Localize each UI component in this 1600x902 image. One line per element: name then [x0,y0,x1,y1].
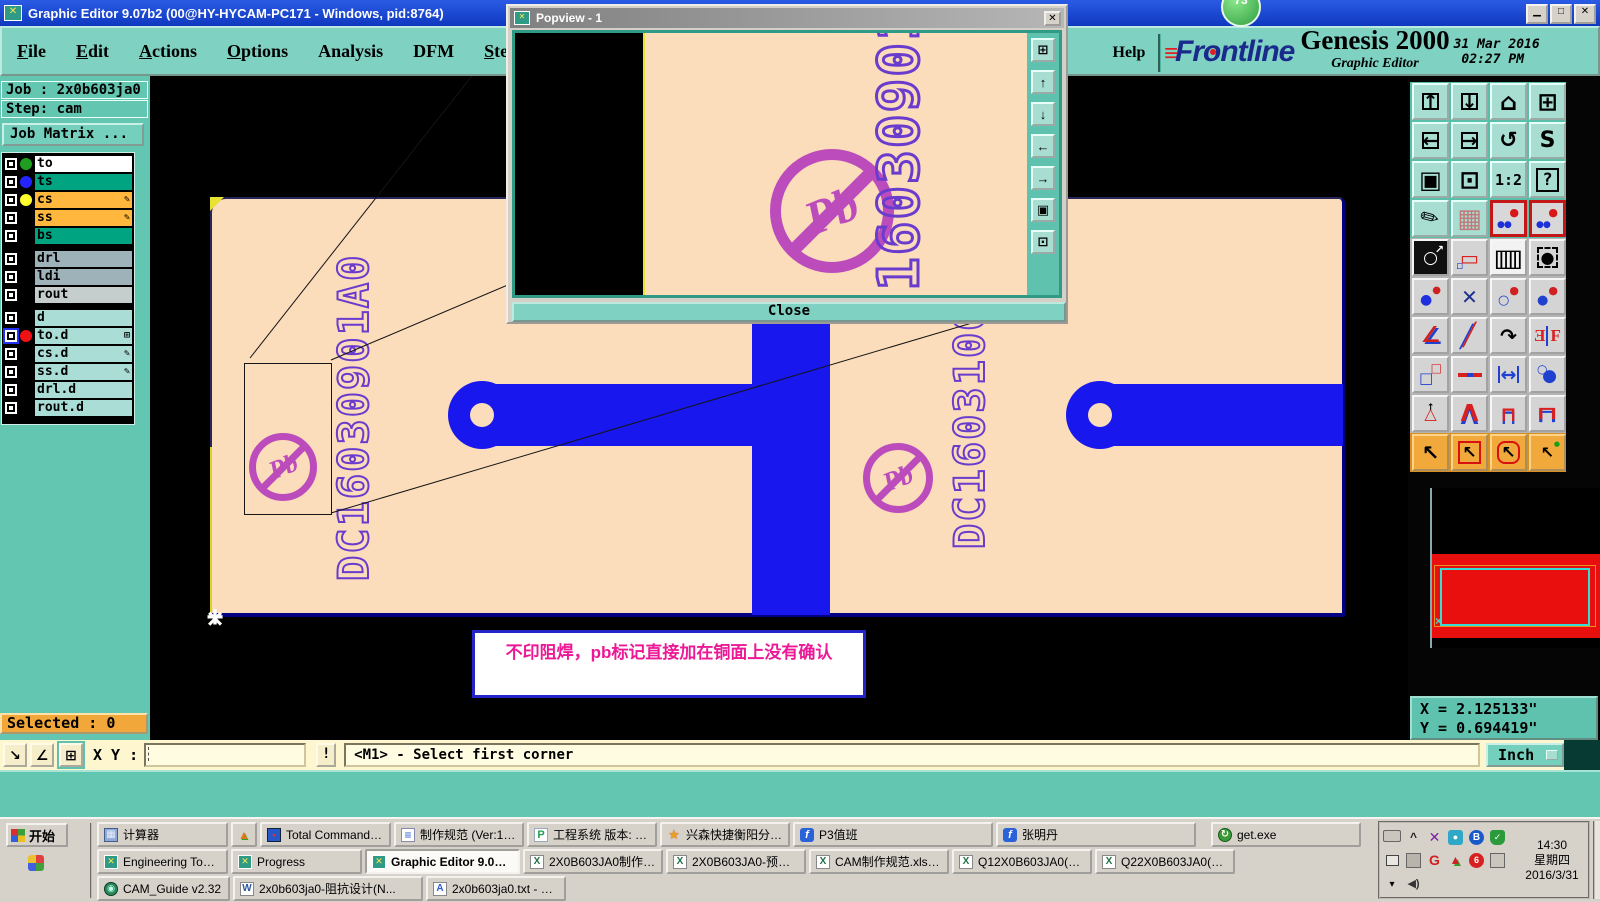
layer-checkbox[interactable] [5,348,17,360]
app-icon: ✕ [4,5,22,21]
dash-line-button[interactable] [1451,356,1488,393]
taskbar-row-1: 计算器 Total Commander 7.0 ... 制作规范 (Ver:1.… [97,822,1361,847]
crosshair-cursor-icon: +× [198,604,232,638]
excel-icon [530,855,544,869]
layer-checkbox[interactable] [5,253,17,265]
layer-checkbox[interactable] [5,230,17,242]
get-exe-icon [1218,828,1232,842]
zoom-out-button[interactable] [1451,161,1488,198]
taskbar-item-zhang[interactable]: 张明丹 [996,822,1196,847]
select-frame-button[interactable] [1451,434,1488,471]
step-name-box: Step: cam [1,100,148,118]
pb-free-mark-mid[interactable]: Pb [863,443,933,513]
xy-origin-button[interactable] [1529,83,1566,120]
volume-icon[interactable]: ◀) [1406,876,1421,891]
taskbar-item-spec-doc[interactable]: 制作规范 (Ver:1.0.6) [394,822,524,847]
tray-dropdown-icon[interactable]: ▾ [1389,879,1394,890]
quick-launch-icon[interactable] [28,855,44,871]
select-net-button[interactable] [1529,434,1566,471]
wordpad-icon [433,882,447,896]
menu-help[interactable]: Help [1100,34,1161,72]
dropdown-handle-icon [1546,750,1558,760]
prompt-message: <M1> - Select first corner [344,743,1480,767]
excel-icon [816,855,830,869]
layer-color-dot [20,348,32,360]
distance-point-button[interactable] [1490,278,1527,315]
taskbar-row-2: Engineering Toolkit 9.07... Progress Gra… [97,849,1235,874]
popview-serial-text: 16030901A0 [867,33,932,291]
genesis-icon [238,855,252,869]
copper-cap-right[interactable] [1066,381,1134,449]
taskbar-item-xls-2[interactable]: 2X0B603JA0-预审指示.... [666,849,806,874]
cam-guide-icon [104,882,118,896]
layer-row-ss[interactable]: ss✎ [4,209,132,226]
layer-display-button-2[interactable] [1529,200,1566,237]
taskbar-item-wordpad[interactable]: 2x0b603ja0.txt - 写字板 [426,876,566,901]
bluetooth-icon[interactable]: B [1469,830,1484,845]
maximize-button[interactable]: □ [1550,4,1572,24]
pan-up-button[interactable] [1412,83,1449,120]
redraw-view-button[interactable] [1490,122,1527,159]
layer-color-dot [20,384,32,396]
menu-analysis[interactable]: Analysis [303,41,398,62]
popview-close-button[interactable]: Close [512,302,1066,322]
ruler-measure-button[interactable] [1490,239,1527,276]
zoom-area-button[interactable] [1412,239,1449,276]
popview-canvas[interactable]: Pb 16030901A0 ⊞ ↑ ↓ ← → ▣ ⊡ [515,33,1059,295]
select-lasso-button[interactable] [1490,434,1527,471]
document-lines-icon [401,828,415,842]
grid-snap-button[interactable]: ⊞ [59,743,83,767]
arrow-app-icon[interactable]: ▲ [1448,853,1463,868]
layer-checkbox-active[interactable] [5,330,17,342]
layer-color-dot [20,176,32,188]
color-app-icon [237,828,251,842]
p-system-icon [534,828,548,842]
slope-measure-button[interactable] [1451,317,1488,354]
layer-color-dot [20,402,32,414]
tray-time: 14:30 [1516,838,1588,853]
popview-close-icon[interactable]: ✕ [1044,11,1061,26]
taskbar-row-3: CAM_Guide v2.32 2x0b603ja0-阻抗设计(N... 2x0… [97,876,566,901]
show-desktop-button[interactable] [1593,821,1600,899]
taskbar-item-p3-duty[interactable]: P3值班 [793,822,993,847]
taskbar-item-total-commander[interactable]: Total Commander 7.0 ... [260,822,391,847]
taskbar-item-calculator[interactable]: 计算器 [97,822,228,847]
layer-row-rout-d[interactable]: rout.d [4,399,132,416]
layer-row-drl-d[interactable]: drl.d [4,381,132,398]
layer-color-dot [20,253,32,265]
taskbar: 开始 计算器 Total Commander 7.0 ... 制作规范 (Ver… [0,817,1600,902]
tray-date: 2016/3/31 [1516,868,1588,883]
right-toolbar-panel: 1:2 ? [1408,76,1600,740]
x-coordinate: X = 2.125133" [1420,700,1596,719]
layer-checkbox[interactable] [5,194,17,206]
layer-row-rout[interactable]: rout [4,286,132,303]
layer-color-dot [20,230,32,242]
taskbar-item-word-doc[interactable]: 2x0b603ja0-阻抗设计(N... [233,876,423,901]
foxmail-icon [800,828,814,842]
excel-icon [959,855,973,869]
net-filter-button[interactable] [1412,278,1449,315]
fetion-icon[interactable]: 6 [1469,853,1484,868]
foxmail-icon [1003,828,1017,842]
layer-checkbox[interactable] [5,212,17,224]
mirror-button[interactable] [1529,317,1566,354]
popview-zoom-out-icon[interactable]: ⊡ [1031,230,1055,254]
layer-checkbox[interactable] [5,158,17,170]
taskbar-item-xls-3[interactable]: CAM制作规范.xls [兼... [809,849,949,874]
layer-checkbox[interactable] [5,402,17,414]
draw-tools-button[interactable] [1412,200,1449,237]
start-button[interactable]: 开始 [6,823,68,847]
menu-edit[interactable]: Edit [61,41,124,62]
pad-filter-button[interactable] [1529,239,1566,276]
layer-color-dot [20,194,32,206]
star-icon [667,828,681,842]
layer-color-dot [20,271,32,283]
pen-mark-icon: ✎ [124,364,130,380]
popview-pan-right-icon[interactable]: → [1031,166,1055,190]
copy-feature-button[interactable] [1412,356,1449,393]
training-tool-icon[interactable]: ✕ [1427,830,1442,845]
calculator-icon [104,828,118,842]
menu-options[interactable]: Options [212,41,303,62]
pen-mark-icon: ✎ [124,346,130,362]
tray-day: 星期四 [1516,853,1588,868]
taskbar-item-eng-system[interactable]: 工程系统 版本: 1.1... [527,822,657,847]
surface-filter-button[interactable] [1529,356,1566,393]
popview-window[interactable]: ✕ Popview - 1 ✕ Pb 16030901A0 ⊞ ↑ ↓ ← → … [506,4,1068,324]
clock[interactable]: 14:30 星期四 2016/3/31 [1516,823,1588,897]
minimap-viewport-rect[interactable] [1440,568,1590,626]
pan-down-button[interactable] [1451,83,1488,120]
layer-color-dot [20,158,32,170]
g-app-icon[interactable]: G [1427,853,1442,868]
query-button[interactable]: ? [1529,161,1566,198]
select-pointer-button[interactable] [1412,434,1449,471]
layer-color-dot [20,289,32,301]
zoom-in-button[interactable] [1412,161,1449,198]
taskbar-item-app[interactable] [231,822,257,847]
taskbar-item-get-exe[interactable]: get.exe [1211,822,1361,847]
menu-actions[interactable]: Actions [124,41,212,62]
highlight-mode-button-1[interactable] [1412,395,1449,432]
product-name: Genesis 2000 Graphic Editor [1300,28,1449,76]
statusbar-end-spacer [1564,740,1600,770]
minimize-button[interactable]: ▁ [1526,4,1548,24]
genesis-icon [372,855,386,869]
excel-icon [673,855,687,869]
engineer-note-box: 不印阻焊，pb标记直接加在铜面上没有确认 [472,630,866,698]
layer-row-cs[interactable]: cs✎ [4,191,132,208]
pan-left-button[interactable] [1412,122,1449,159]
popview-frame: Pb 16030901A0 ⊞ ↑ ↓ ← → ▣ ⊡ [512,30,1062,298]
spacing-measure-button[interactable] [1490,356,1527,393]
layer-color-dot [20,330,32,342]
excel-icon [1102,855,1116,869]
system-tray: ▾ ^ ✕ ● B ✓ G ▲ 6 ◀) 14:30 星期四 2016/3/31 [1378,821,1590,899]
grid-toggle-button[interactable] [1451,200,1488,237]
home-view-button[interactable] [1490,83,1527,120]
layer-row-d[interactable]: d [4,309,132,326]
layer-checkbox[interactable] [5,176,17,188]
pen-mark-icon: ✎ [124,192,130,208]
clear-highlight-button[interactable] [1451,278,1488,315]
layer-checkbox[interactable] [5,366,17,378]
highlight-mode-button-2[interactable] [1451,395,1488,432]
popview-pan-up-icon[interactable]: ↑ [1031,70,1055,94]
popview-icon: ✕ [514,11,530,25]
keyboard-icon[interactable] [1383,830,1401,842]
messenger-icon[interactable]: ● [1448,830,1463,845]
layer-row-drl[interactable]: drl [4,250,132,267]
taskbar-separator [90,823,95,898]
layer-row-ldi[interactable]: ldi [4,268,132,285]
highlight-mode-button-4[interactable] [1529,395,1566,432]
pen-mark-icon: ✎ [124,210,130,226]
menu-dfm[interactable]: DFM [398,41,469,62]
layer-row-ss-d[interactable]: ss.d✎ [4,363,132,380]
layer-checkbox[interactable] [5,312,17,324]
product-subtitle: Graphic Editor [1300,52,1449,76]
expand-chevron-icon[interactable]: ^ [1406,830,1421,845]
layer-checkbox[interactable] [5,289,17,301]
selected-count: Selected : 0 [0,713,148,734]
layer-group-drawing: d to.d⊞ cs.d✎ ss.d✎ drl.d rout.d [4,309,132,416]
drag-mode-button[interactable]: ↘ [3,743,27,767]
layer-color-dot [20,312,32,324]
popview-clone-icon[interactable]: ⊞ [1031,38,1055,62]
taskbar-item-company[interactable]: 兴森快捷衡阳分公司... [660,822,790,847]
xy-label: X Y : [93,746,138,764]
popview-titlebar[interactable]: ✕ Popview - 1 ✕ [510,8,1064,28]
snap-angle-button[interactable]: ∠ [30,743,54,767]
coordinate-readout: X = 2.125133"Y = 0.694419" [1410,696,1598,740]
layer-row-to[interactable]: to [4,155,132,172]
frontline-logo: ≡Frontline [1164,35,1294,69]
popview-zoom-in-icon[interactable]: ▣ [1031,198,1055,222]
taskbar-item-progress[interactable]: Progress [231,849,362,874]
layer-checkbox[interactable] [5,384,17,396]
layer-group-board: to ts cs✎ ss✎ bs [4,155,132,244]
y-coordinate: Y = 0.694419" [1420,719,1596,738]
angle-measure-button[interactable] [1412,317,1449,354]
genesis-icon [104,855,118,869]
usb-device-icon[interactable] [1406,853,1421,868]
datetime-display: 31 Mar 2016 02:27 PM [1454,37,1540,67]
total-commander-icon [267,828,281,842]
taskbar-item-xls-5[interactable]: Q22X0B603JA0(P6Ys)2... [1095,849,1235,874]
previous-view-button[interactable] [1529,122,1566,159]
overview-minimap[interactable]: × [1430,488,1600,648]
taskbar-item-xls-4[interactable]: Q12X0B603JA0(P6Ys)2... [952,849,1092,874]
menu-file[interactable]: File [2,41,61,62]
pan-right-button[interactable] [1451,122,1488,159]
network-icon[interactable] [1490,853,1505,868]
layer-row-to-d[interactable]: to.d⊞ [4,327,132,344]
minimap-cursor-mark: × [1435,614,1442,628]
distance-object-button[interactable] [1529,278,1566,315]
taskbar-item-eng-toolkit[interactable]: Engineering Toolkit 9.07... [97,849,228,874]
popview-profile-line [643,33,645,295]
popview-outside-area [515,33,643,295]
job-name-box: Job : 2x0b603ja0 [1,81,148,99]
board-serial-text-left[interactable]: DC16030901A0 [329,254,378,581]
taskbar-item-xls-1[interactable]: 2X0B603JA0制作单.xls ... [523,849,663,874]
popview-title: Popview - 1 [536,11,602,25]
layer-list: to ts cs✎ ss✎ bs drl ldi rout d to.d⊞ cs… [1,152,135,425]
app-window-bottom-border [0,770,1600,819]
copper-trace-right[interactable] [1100,384,1343,446]
window-title: Graphic Editor 9.07b2 (00@HY-HYCAM-PC171… [28,6,444,21]
brand-area: ≡Frontline Genesis 2000 Graphic Editor 3… [1164,30,1556,74]
layer-row-bs[interactable]: bs [4,227,132,244]
taskbar-item-graphic-editor[interactable]: Graphic Editor 9.07b... [365,849,520,874]
layer-color-dot [20,212,32,224]
popview-toolbar: ⊞ ↑ ↓ ← → ▣ ⊡ [1027,33,1059,295]
layer-color-dot [20,366,32,378]
xy-coordinate-input[interactable] [144,743,306,767]
layer-display-button-1[interactable] [1490,200,1527,237]
copper-cap-left[interactable] [448,381,516,449]
layer-checkbox[interactable] [5,271,17,283]
popview-pan-down-icon[interactable]: ↓ [1031,102,1055,126]
layer-group-misc: drl ldi rout [4,250,132,303]
engineer-note-text: 不印阻焊，pb标记直接加在铜面上没有确认 [475,638,863,663]
units-dropdown[interactable]: Inch [1486,743,1564,767]
grid-mark-icon: ⊞ [124,328,130,344]
alert-button[interactable]: ! [316,743,336,767]
popview-pan-left-icon[interactable]: ← [1031,134,1055,158]
antivirus-shield-icon[interactable]: ✓ [1490,830,1505,845]
zoom-callout-rect [244,363,332,515]
copper-trace-left[interactable] [478,384,754,446]
windows-flag-icon [11,829,25,842]
arc-mode-button[interactable] [1490,317,1527,354]
close-button[interactable]: ✕ [1574,4,1596,24]
window-stack-icon[interactable] [1386,855,1399,866]
layer-row-ts[interactable]: ts [4,173,132,190]
highlight-mode-button-3[interactable] [1490,395,1527,432]
taskbar-item-cam-guide[interactable]: CAM_Guide v2.32 [97,876,230,901]
shape-filter-button[interactable] [1451,239,1488,276]
layer-row-cs-d[interactable]: cs.d✎ [4,345,132,362]
zoom-ratio-button[interactable]: 1:2 [1490,161,1527,198]
word-icon [240,882,254,896]
status-bar: ↘ ∠ ⊞ X Y : ! <M1> - Select first corner… [0,740,1600,770]
job-sidebar: Job : 2x0b603ja0 Step: cam Job Matrix ..… [0,76,150,740]
job-matrix-button[interactable]: Job Matrix ... [2,123,144,146]
